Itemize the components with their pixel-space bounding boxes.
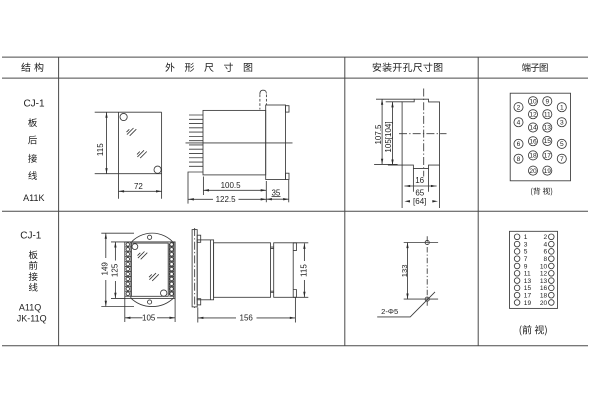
svg-text:72: 72 bbox=[134, 182, 143, 191]
svg-text:A11K: A11K bbox=[23, 193, 44, 203]
svg-text:13: 13 bbox=[524, 278, 532, 285]
svg-text:115: 115 bbox=[300, 264, 309, 277]
svg-text:2: 2 bbox=[544, 234, 548, 241]
svg-text:1: 1 bbox=[524, 234, 528, 241]
svg-text:18: 18 bbox=[529, 153, 537, 160]
svg-text:105[104]: 105[104] bbox=[384, 121, 393, 152]
svg-text:6: 6 bbox=[544, 249, 548, 256]
svg-text:17: 17 bbox=[544, 152, 552, 159]
svg-text:133: 133 bbox=[400, 265, 409, 278]
svg-text:10: 10 bbox=[529, 98, 537, 105]
svg-text:14: 14 bbox=[529, 125, 537, 132]
svg-text:105: 105 bbox=[142, 313, 156, 322]
svg-text:16: 16 bbox=[415, 176, 424, 185]
svg-text:1: 1 bbox=[560, 104, 564, 111]
svg-text:35: 35 bbox=[271, 188, 280, 197]
svg-text:149: 149 bbox=[101, 262, 110, 276]
svg-text:65: 65 bbox=[415, 189, 424, 198]
svg-text:11: 11 bbox=[544, 111, 551, 118]
svg-text:15: 15 bbox=[544, 138, 552, 145]
svg-text:CJ-1: CJ-1 bbox=[20, 230, 42, 241]
svg-text:16: 16 bbox=[529, 138, 537, 145]
svg-text:156: 156 bbox=[240, 313, 254, 322]
svg-text:4: 4 bbox=[544, 241, 548, 248]
svg-text:125: 125 bbox=[110, 263, 119, 277]
svg-text:18: 18 bbox=[540, 293, 548, 300]
svg-text:122.5: 122.5 bbox=[216, 195, 237, 204]
svg-text:5: 5 bbox=[524, 249, 528, 256]
svg-text:17: 17 bbox=[524, 293, 532, 300]
svg-text:13: 13 bbox=[540, 278, 548, 285]
svg-text:19: 19 bbox=[544, 168, 552, 175]
svg-text:JK-11Q: JK-11Q bbox=[17, 313, 47, 323]
svg-text:15: 15 bbox=[524, 285, 532, 292]
svg-text:6: 6 bbox=[517, 141, 521, 148]
svg-text:2: 2 bbox=[517, 104, 521, 111]
svg-text:10: 10 bbox=[540, 263, 548, 270]
svg-text:20: 20 bbox=[529, 168, 537, 175]
svg-text:9: 9 bbox=[524, 263, 528, 270]
svg-text:16: 16 bbox=[540, 285, 548, 292]
svg-text:7: 7 bbox=[560, 156, 564, 163]
svg-text:4: 4 bbox=[517, 119, 521, 126]
svg-text:2-Φ5: 2-Φ5 bbox=[381, 307, 398, 316]
svg-text:9: 9 bbox=[545, 98, 549, 105]
svg-text:107.5: 107.5 bbox=[374, 124, 383, 145]
svg-text:20: 20 bbox=[540, 300, 548, 307]
svg-text:5: 5 bbox=[560, 141, 564, 148]
svg-text:A11Q: A11Q bbox=[19, 303, 41, 313]
svg-text:3: 3 bbox=[524, 241, 528, 248]
svg-text:[64]: [64] bbox=[413, 197, 426, 206]
svg-text:12: 12 bbox=[540, 271, 548, 278]
svg-text:3: 3 bbox=[560, 119, 564, 126]
svg-text:CJ-1: CJ-1 bbox=[23, 99, 45, 110]
svg-text:100.5: 100.5 bbox=[221, 181, 242, 190]
svg-text:12: 12 bbox=[529, 111, 537, 118]
svg-text:13: 13 bbox=[544, 125, 552, 132]
svg-text:19: 19 bbox=[524, 300, 532, 307]
svg-text:115: 115 bbox=[96, 143, 105, 156]
svg-text:11: 11 bbox=[524, 271, 531, 278]
svg-text:8: 8 bbox=[517, 156, 521, 163]
svg-text:7: 7 bbox=[524, 256, 528, 263]
svg-text:8: 8 bbox=[544, 256, 548, 263]
